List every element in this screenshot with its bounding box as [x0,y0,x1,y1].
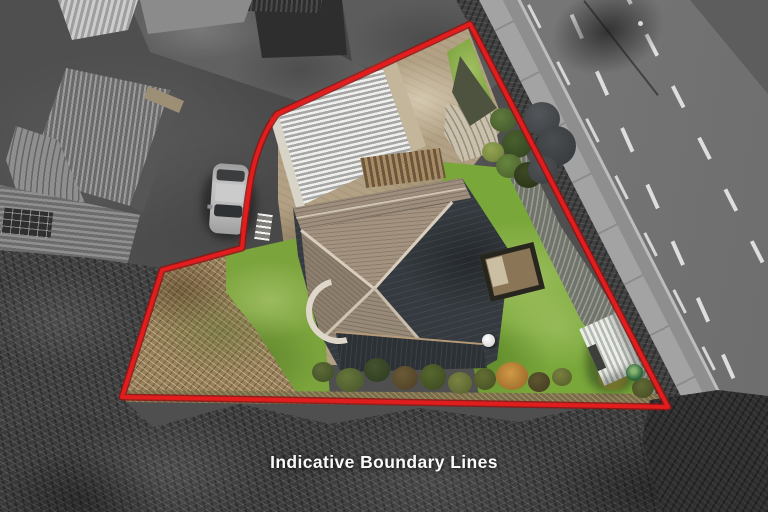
caption-text: Indicative Boundary Lines [0,452,768,473]
boundary-overlay [0,0,768,512]
boundary-line-edge [122,24,668,407]
aerial-photo: Indicative Boundary Lines [0,0,768,512]
boundary-line [122,24,668,407]
